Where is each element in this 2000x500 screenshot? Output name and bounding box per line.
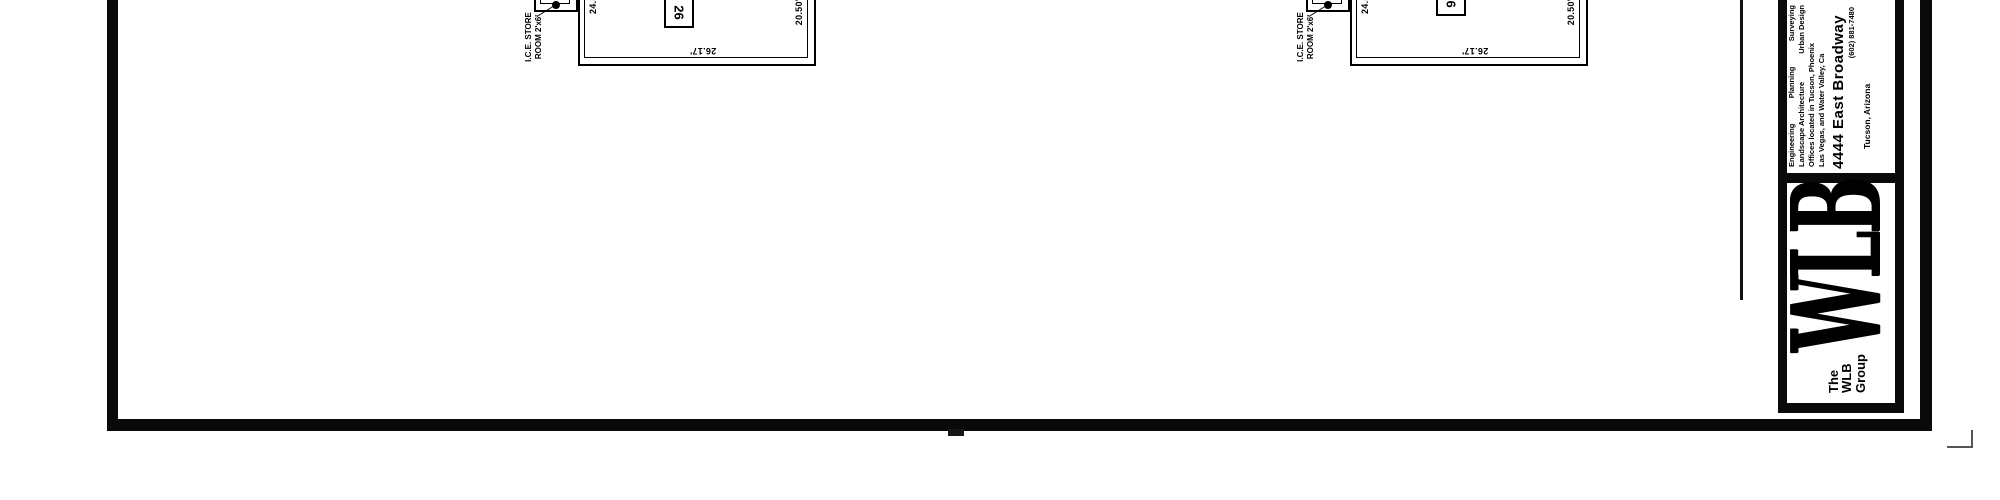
disciplines-line: Landscape Architecture Urban Design xyxy=(1797,1,1807,171)
services-line: Engineering Planning Surveying xyxy=(1787,1,1797,171)
firm-city: Tucson, Arizona xyxy=(1856,1,1872,171)
offices-line1: Offices located in Tucson, Phoenix xyxy=(1807,1,1817,171)
room-label-line1: I.C.E. STORE xyxy=(524,10,534,64)
room-label-line2: ROOM 2'x6' xyxy=(534,10,544,64)
logo-small-group: Group xyxy=(1854,354,1867,393)
room-label: I.C.E. STORE ROOM 2'x6' xyxy=(1296,10,1318,64)
sheet-border-right xyxy=(1920,0,1932,431)
sheet-border-bottom xyxy=(107,419,1932,431)
corner-trim-mark-horizontal xyxy=(1947,446,1973,448)
discipline-landscape: Landscape Architecture xyxy=(1797,82,1807,167)
keynote-box: 26 xyxy=(664,0,694,28)
service-planning: Planning xyxy=(1787,67,1797,99)
sheet-border-left xyxy=(107,0,118,424)
fold-tick-mark xyxy=(948,429,964,436)
floor-plan-fragment-2: I.C.E. STORE ROOM 2'x6' 24.50' 26 26.17'… xyxy=(1292,0,1592,80)
title-block-border-bottom xyxy=(1778,403,1904,413)
logo-small-wlb: WLB xyxy=(1840,354,1853,393)
drawing-area-margin-line xyxy=(1740,0,1743,300)
wlb-logo-small-text: The WLB Group xyxy=(1827,354,1867,393)
firm-info-panel: Engineering Planning Surveying Landscape… xyxy=(1787,1,1893,171)
dimension-right: 20.50' xyxy=(1566,0,1578,30)
firm-address: 4444 East Broadway xyxy=(1828,1,1847,171)
room-label-line2: ROOM 2'x6' xyxy=(1306,10,1316,64)
wlb-logo-box: The WLB Group WLB xyxy=(1788,185,1892,401)
dimension-bottom: 26.17' xyxy=(676,44,730,56)
offices-line2: Las Vegas, and Water Valley, Ca xyxy=(1817,1,1827,171)
logo-small-the: The xyxy=(1827,354,1840,393)
corner-trim-mark-vertical xyxy=(1971,430,1973,448)
discipline-urban-design: Urban Design xyxy=(1797,5,1807,54)
floor-plan-fragment-1: I.C.E. STORE ROOM 2'x6' 24.50' 26 26.17'… xyxy=(520,0,820,80)
firm-phone: (602) 881-7480 xyxy=(1847,1,1856,171)
room-label: I.C.E. STORE ROOM 2'x6' xyxy=(524,10,546,64)
dimension-left: 24.50' xyxy=(588,0,600,14)
service-engineering: Engineering xyxy=(1787,124,1797,167)
room-label-line1: I.C.E. STORE xyxy=(1296,10,1306,64)
keynote-box: 26 xyxy=(1436,0,1466,16)
title-block: Engineering Planning Surveying Landscape… xyxy=(1778,0,1908,413)
keynote-number: 26 xyxy=(672,5,687,19)
dimension-right: 20.50' xyxy=(794,0,806,30)
wlb-logo-big-letters: WLB xyxy=(1788,180,1886,352)
dimension-left: 24.50' xyxy=(1360,0,1372,14)
service-surveying: Surveying xyxy=(1787,5,1797,41)
dimension-bottom: 26.17' xyxy=(1448,44,1502,56)
keynote-number: 26 xyxy=(1444,0,1459,8)
